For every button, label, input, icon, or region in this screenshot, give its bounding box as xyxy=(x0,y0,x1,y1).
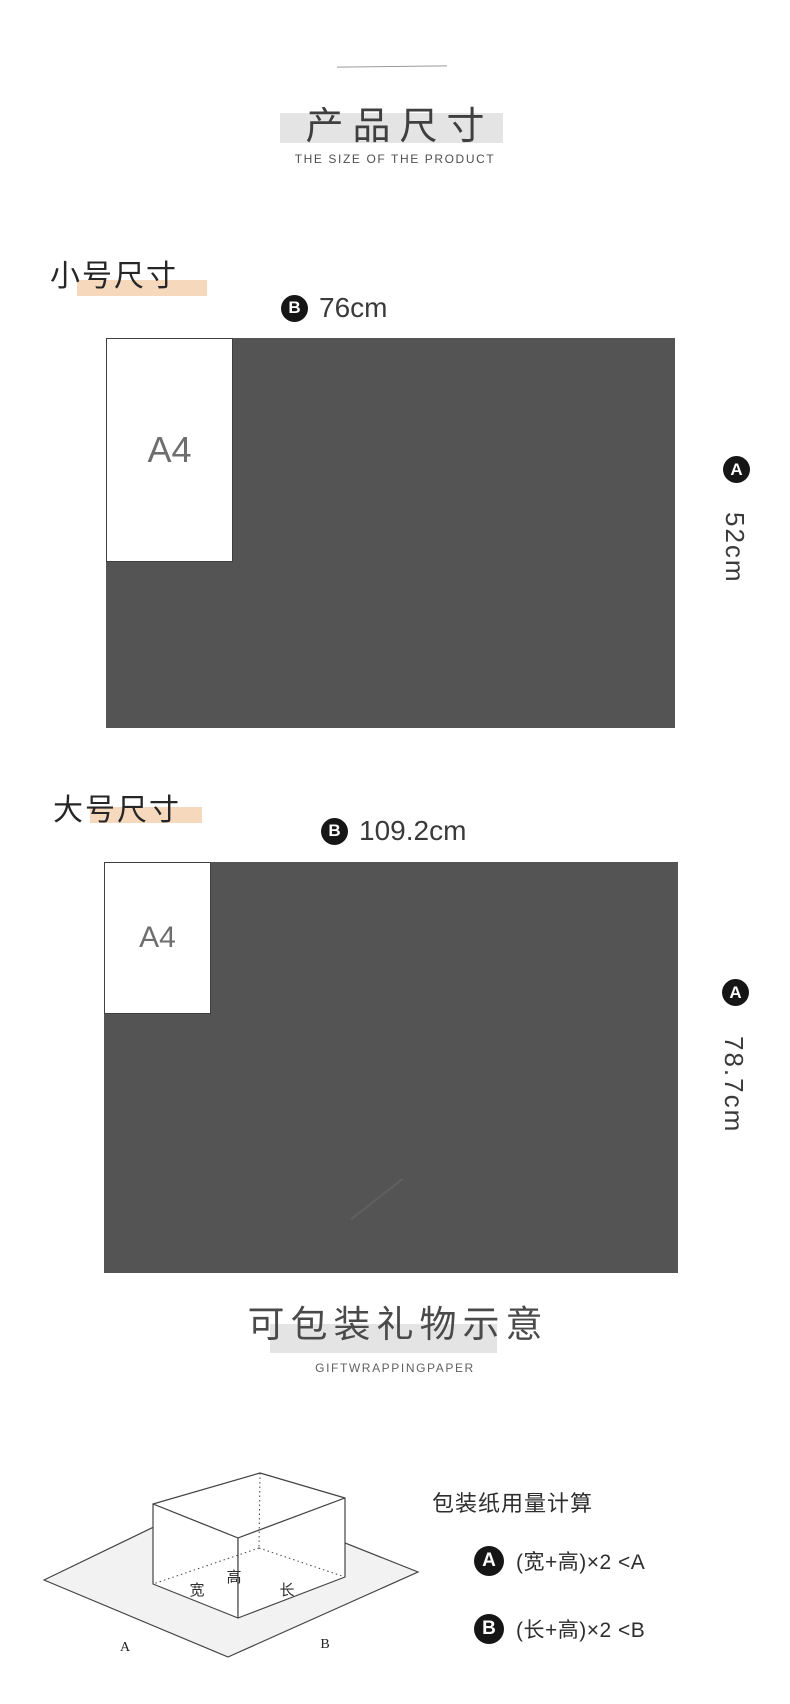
marker-b-icon-large: B xyxy=(321,818,348,845)
box-length-label: 长 xyxy=(279,1582,294,1599)
large-a4-label: A4 xyxy=(139,921,176,955)
formula-a-text: (宽+高)×2 <A xyxy=(516,1546,645,1576)
small-width-dimension: B 76cm xyxy=(281,292,387,324)
small-a4-reference: A4 xyxy=(106,338,233,562)
page-title: 产品尺寸 xyxy=(0,95,790,150)
marker-a-icon-formula: A xyxy=(474,1546,504,1576)
marker-a-icon-large: A xyxy=(722,979,749,1006)
sheet-a-label: A xyxy=(120,1640,131,1655)
gift-section-subtitle: GIFTWRAPPINGPAPER xyxy=(0,1361,790,1375)
paper-fold-mark xyxy=(350,1178,403,1220)
small-a4-label: A4 xyxy=(147,429,191,471)
marker-b-icon-small: B xyxy=(281,295,308,322)
gift-section-title: 可包装礼物示意 xyxy=(0,1294,790,1348)
box-width-label: 宽 xyxy=(189,1582,204,1599)
product-size-page: 产品尺寸 THE SIZE OF THE PRODUCT 小号尺寸 B 76cm… xyxy=(0,0,790,1704)
marker-b-icon-formula: B xyxy=(474,1614,504,1644)
large-width-dimension: B 109.2cm xyxy=(321,815,466,847)
box-height-label: 高 xyxy=(226,1569,241,1586)
formula-b-text: (长+高)×2 <B xyxy=(516,1614,645,1644)
page-subtitle: THE SIZE OF THE PRODUCT xyxy=(0,152,790,166)
marker-a-icon-small: A xyxy=(723,456,750,483)
large-size-label: 大号尺寸 xyxy=(53,785,181,829)
large-width-value: 109.2cm xyxy=(359,815,466,847)
small-width-value: 76cm xyxy=(319,292,387,324)
large-a4-reference: A4 xyxy=(104,862,211,1014)
small-size-label: 小号尺寸 xyxy=(50,251,178,295)
gift-box-illustration: 宽 高 长 A B xyxy=(22,1452,422,1697)
formula-a-row: A (宽+高)×2 <A xyxy=(474,1546,645,1576)
large-height-value: 78.7cm xyxy=(718,1036,749,1133)
top-divider-line xyxy=(337,65,447,67)
formula-b-row: B (长+高)×2 <B xyxy=(474,1614,645,1644)
sheet-b-label: B xyxy=(320,1637,329,1652)
small-height-value: 52cm xyxy=(719,512,750,584)
calc-title: 包装纸用量计算 xyxy=(432,1486,593,1518)
